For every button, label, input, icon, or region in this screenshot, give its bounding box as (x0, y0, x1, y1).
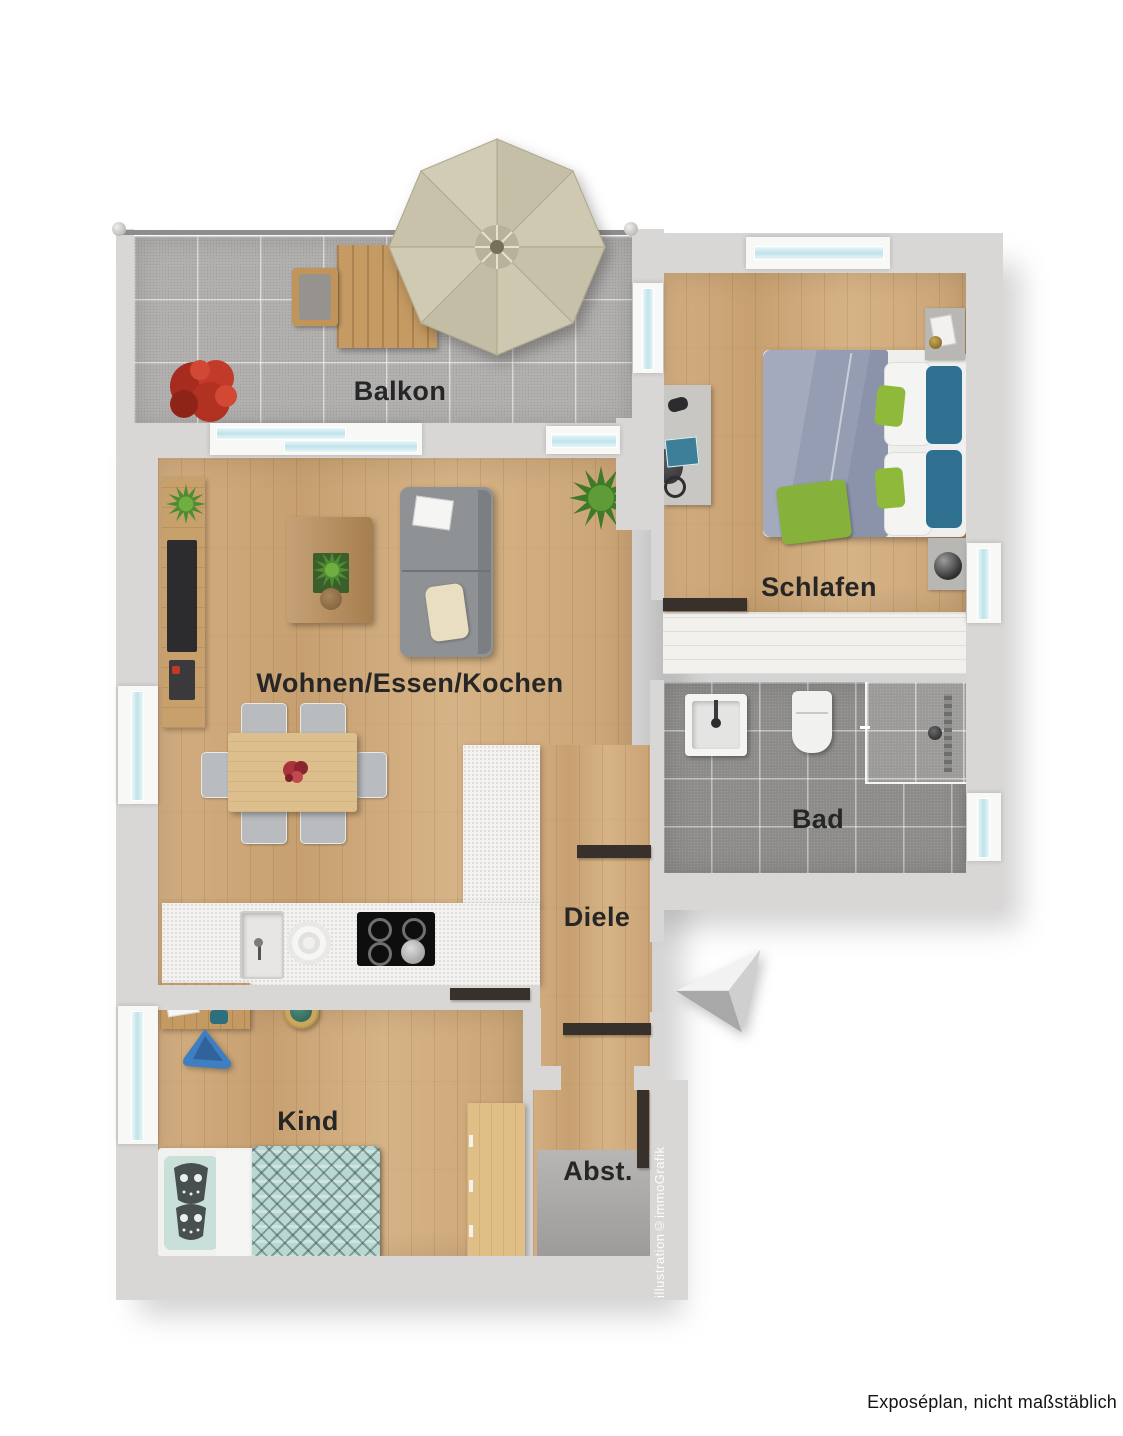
kitchen-island-column (463, 745, 540, 905)
dish-stack (284, 918, 334, 968)
door-marker-bedroom (663, 598, 747, 611)
bath-faucet-knob (711, 718, 721, 728)
dining-chair (241, 808, 287, 844)
kids-toy-teal (210, 1010, 228, 1024)
balcony-door-glass (284, 440, 418, 453)
bed-pillow-green (874, 467, 905, 509)
wall-segment (650, 873, 1003, 910)
window-glass (977, 798, 990, 858)
sphere-lamp (934, 552, 962, 580)
wardrobe-handle (469, 1135, 473, 1147)
railing-knob (624, 222, 638, 236)
owl-pillow (164, 1156, 218, 1250)
desk-headphones (664, 476, 686, 498)
bed-pillow-teal (926, 450, 962, 528)
room-label-wohnen: Wohnen/Essen/Kochen (256, 668, 563, 699)
tv-screen (167, 540, 197, 652)
window-glass (642, 288, 654, 370)
door-marker-kids (450, 988, 530, 1000)
kids-sheet-fold (216, 1150, 256, 1256)
window-glass (131, 691, 144, 801)
room-label-abst: Abst. (563, 1156, 633, 1187)
av-equipment-red-detail (172, 666, 180, 674)
kids-duvet (252, 1146, 380, 1258)
dining-chair (355, 752, 387, 798)
toilet-lid-line (796, 712, 828, 714)
room-label-kind: Kind (277, 1106, 339, 1137)
illustrator-watermark: illustration©immoGrafik (652, 1072, 672, 1298)
wardrobe-handle (469, 1225, 473, 1237)
dining-chair (300, 808, 346, 844)
red-plant (160, 348, 252, 432)
sofa-backrest (478, 490, 491, 654)
wall-segment (523, 1066, 561, 1090)
window-glass (754, 246, 884, 260)
bed-pillow-teal (926, 366, 962, 444)
faucet-knob (254, 938, 263, 947)
room-label-balkon: Balkon (354, 376, 446, 407)
door-marker-hall-top (577, 845, 651, 858)
bedroom-wardrobe-band (663, 612, 966, 674)
wall-segment (116, 229, 134, 428)
wardrobe-handle (469, 1180, 473, 1192)
bed-pillow-green (874, 385, 906, 428)
table-plant (313, 551, 351, 589)
plan-caption: Exposéplan, nicht maßstäblich (867, 1392, 1117, 1413)
sofa-cushion-cream (424, 583, 469, 643)
cooktop-burner (368, 942, 392, 966)
shower-glass-handle (860, 726, 870, 729)
potted-plant (166, 484, 206, 524)
room-label-bad: Bad (792, 804, 844, 835)
toilet (792, 691, 832, 753)
sofa-seam (402, 570, 490, 572)
wall-segment (650, 842, 664, 942)
balcony-door-glass (216, 427, 346, 440)
wall-segment (523, 1008, 541, 1070)
window-glass (977, 548, 990, 620)
pan-on-stove (401, 940, 425, 964)
shower-fixture (928, 726, 942, 740)
wall-segment (116, 1256, 688, 1300)
entrance-arrow (674, 942, 768, 1036)
table-flowers (278, 754, 314, 790)
door-marker-storage (637, 1090, 649, 1168)
kids-wardrobe (467, 1103, 525, 1257)
desk-book (665, 436, 700, 467)
magazine (412, 496, 454, 531)
decor-bowl (320, 588, 342, 610)
balcony-chair-seat (299, 274, 331, 320)
cooktop-burner (368, 918, 392, 942)
blue-triangle-toy (180, 1026, 234, 1072)
shower-floor (865, 682, 968, 784)
room-label-schlafen: Schlafen (761, 572, 877, 603)
railing-knob (112, 222, 126, 236)
kitchen-counter (162, 903, 540, 985)
room-label-diele: Diele (564, 902, 631, 933)
wall-segment (116, 425, 158, 1300)
wall-segment (651, 440, 664, 600)
door-marker-hall-mid (563, 1023, 651, 1035)
green-blanket (776, 479, 853, 545)
nightstand-clock (929, 336, 942, 349)
shower-drain (944, 694, 952, 772)
parasol (387, 137, 607, 357)
cooktop-burner (402, 918, 426, 942)
window-glass (551, 434, 617, 448)
floor-plan: Balkon Wohnen/Essen/Kochen Schlafen Bad … (0, 0, 1123, 1436)
window-glass (131, 1011, 144, 1141)
